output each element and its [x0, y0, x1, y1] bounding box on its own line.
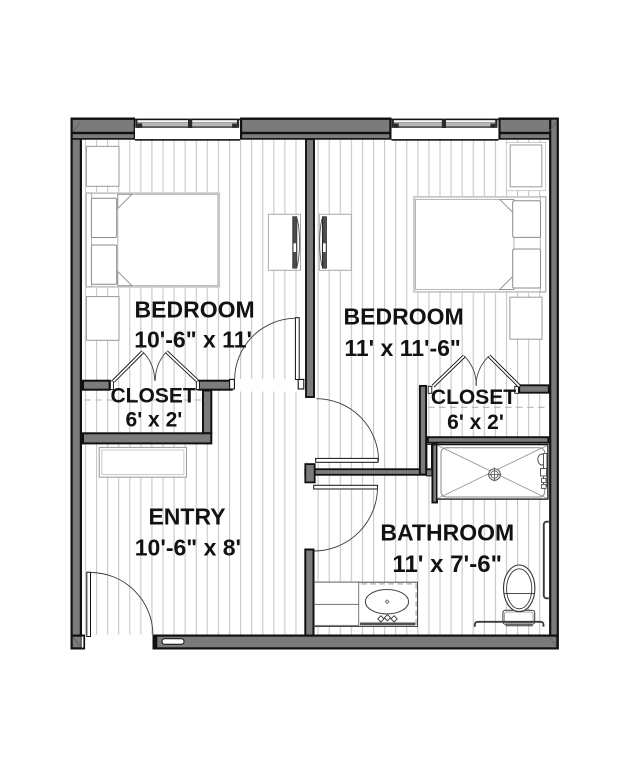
svg-text:6' x 2': 6' x 2': [126, 409, 183, 432]
svg-text:6' x 2': 6' x 2': [447, 411, 504, 434]
svg-text:BATHROOM: BATHROOM: [380, 520, 514, 546]
svg-text:ENTRY: ENTRY: [148, 504, 225, 530]
svg-text:CLOSET: CLOSET: [111, 384, 196, 407]
svg-text:CLOSET: CLOSET: [431, 386, 516, 409]
svg-text:10'-6" x 8': 10'-6" x 8': [135, 534, 241, 560]
svg-text:11' x 11'-6": 11' x 11'-6": [344, 335, 461, 361]
svg-text:BEDROOM: BEDROOM: [344, 303, 464, 329]
svg-text:BEDROOM: BEDROOM: [135, 297, 255, 323]
svg-text:11' x 7'-6": 11' x 7'-6": [392, 551, 502, 578]
svg-text:10'-6" x 11': 10'-6" x 11': [134, 326, 252, 352]
